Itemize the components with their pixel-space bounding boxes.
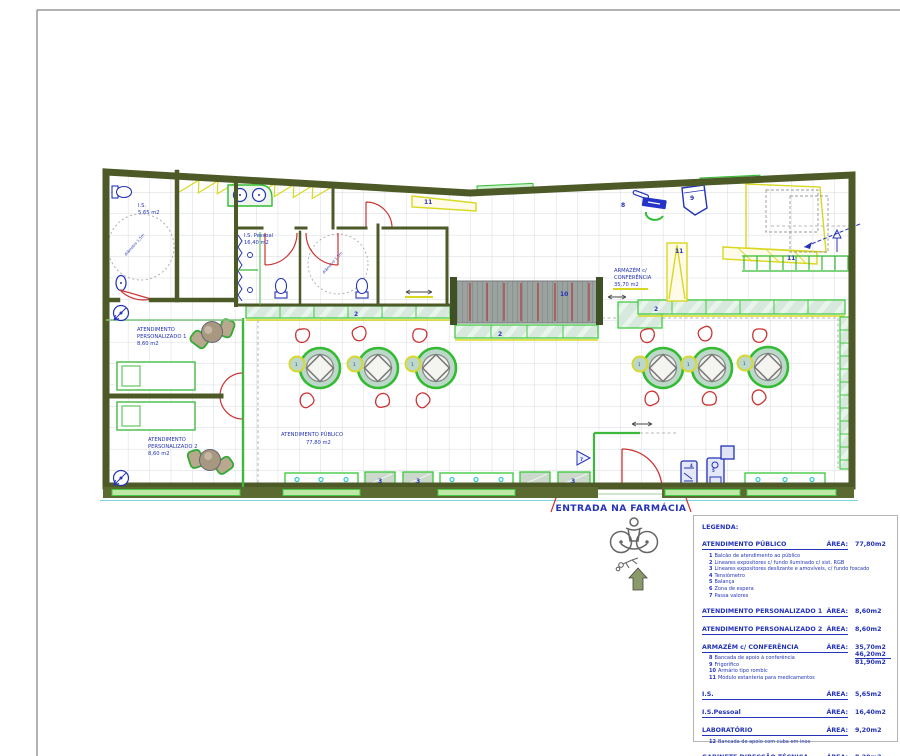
svg-text:8,60 m2: 8,60 m2 xyxy=(148,451,170,457)
legend-section-is: I.S.ÁREA: 5,65m2 xyxy=(702,691,891,700)
legend-section-personalizado-1: ATENDIMENTO PERSONALIZADO 1ÁREA: 8,60m2 xyxy=(702,608,891,617)
marker-11: 11 xyxy=(787,255,795,262)
room-label-is-pessoal: I.S. Pessoal xyxy=(244,233,273,239)
marker-4: 4 xyxy=(690,463,693,468)
section-marker xyxy=(114,306,129,321)
legend-item: 10Armário tipo rombic xyxy=(709,668,891,675)
cabinet-rombic xyxy=(450,277,603,325)
marker-11: 11 xyxy=(424,199,432,206)
room-label-ap2: ATENDIMENTO xyxy=(148,437,186,443)
svg-text:8,60 m2: 8,60 m2 xyxy=(137,341,159,347)
legend-area-sum-part: 46,20m2 xyxy=(855,651,891,659)
marker-10: 10 xyxy=(560,291,568,298)
legend-section-atendimento-publico: ATENDIMENTO PÚBLICOÁREA: 77,80m2 1Balcão… xyxy=(702,541,891,599)
entrance-label: ENTRADA NA FARMÁCIA xyxy=(556,502,687,514)
room-area-is: 5,65 m2 xyxy=(138,210,160,216)
room-label-armazem: ARMAZÉM c/ xyxy=(614,266,647,274)
marker-8: 8 xyxy=(621,202,625,209)
toilet xyxy=(275,279,287,299)
svg-text:PERSONALIZADO 2: PERSONALIZADO 2 xyxy=(148,444,197,450)
legend-title: LEGENDA: xyxy=(702,523,891,531)
svg-text:35,70 m2: 35,70 m2 xyxy=(614,282,639,288)
legend-item: 5Balança xyxy=(709,579,891,586)
legend-section-name: ATENDIMENTO PÚBLICO xyxy=(702,541,786,548)
toilet xyxy=(112,186,132,198)
entrance-arrow-icon xyxy=(629,568,647,590)
svg-text:CONFERÊNCIA: CONFERÊNCIA xyxy=(614,273,652,281)
bottom-wall xyxy=(100,487,858,501)
room-area-is-pessoal: 16,40 m2 xyxy=(244,240,269,246)
marker-7: 7 xyxy=(580,457,583,463)
legend-area-word: ÁREA: xyxy=(826,541,848,548)
room-label-ap1: ATENDIMENTO xyxy=(137,327,175,333)
marker-3: 3 xyxy=(378,478,382,485)
marker-2: 2 xyxy=(354,311,358,318)
room-label-is: I.S. xyxy=(138,203,146,209)
svg-text:77,80 m2: 77,80 m2 xyxy=(306,440,331,446)
legend-item: 12Bancada de apoio com cuba em inox xyxy=(709,739,891,746)
legend-area-value: 77,80m2 xyxy=(855,541,891,548)
drawing-sheet: 1 diâmetro 1,5m diâmetro 1,5m xyxy=(0,0,900,756)
room-label-apublico: ATENDIMENTO PÚBLICO xyxy=(281,431,343,438)
legend-section-laboratorio: LABORATÓRIOÁREA: 9,20m2 12Bancada de apo… xyxy=(702,727,891,746)
marker-11: 11 xyxy=(675,248,683,255)
legend-item: 1Balcão de atendimento ao público xyxy=(709,553,891,560)
legend-item: 3Lineares expositores deslizante e amoví… xyxy=(709,566,891,573)
marker-3: 3 xyxy=(571,478,575,485)
svg-text:PERSONALIZADO 1: PERSONALIZADO 1 xyxy=(137,334,186,340)
marker-5: 5 xyxy=(712,468,715,473)
legend-section-personalizado-2: ATENDIMENTO PERSONALIZADO 2ÁREA: 8,60m2 xyxy=(702,626,891,635)
legend-section-armazem: ARMAZÉM c/ CONFERÊNCIAÁREA: 35,70m2 46,2… xyxy=(702,644,891,681)
toilet xyxy=(356,279,368,299)
legend-item: 7Passa valores xyxy=(709,593,891,600)
marker-2: 2 xyxy=(498,331,502,338)
attendant-figure-icon xyxy=(616,558,638,571)
section-marker xyxy=(114,471,129,486)
legend-item: 6Zona de espera xyxy=(709,586,891,593)
marker-2: 2 xyxy=(654,306,658,313)
marker-9: 9 xyxy=(690,195,694,202)
wheelchair-icon xyxy=(611,518,658,553)
legend-item: 4Tensiómetro xyxy=(709,573,891,580)
legend-item: 11Módulo estanteria para medicamentos xyxy=(709,675,891,682)
legend-section-is-pessoal: I.S.PessoalÁREA: 16,40m2 xyxy=(702,709,891,718)
marker-3: 3 xyxy=(416,478,420,485)
legend-area-sum-total: 81,90m2 xyxy=(855,659,891,666)
legend-panel: LEGENDA: ATENDIMENTO PÚBLICOÁREA: 77,80m… xyxy=(693,515,898,742)
